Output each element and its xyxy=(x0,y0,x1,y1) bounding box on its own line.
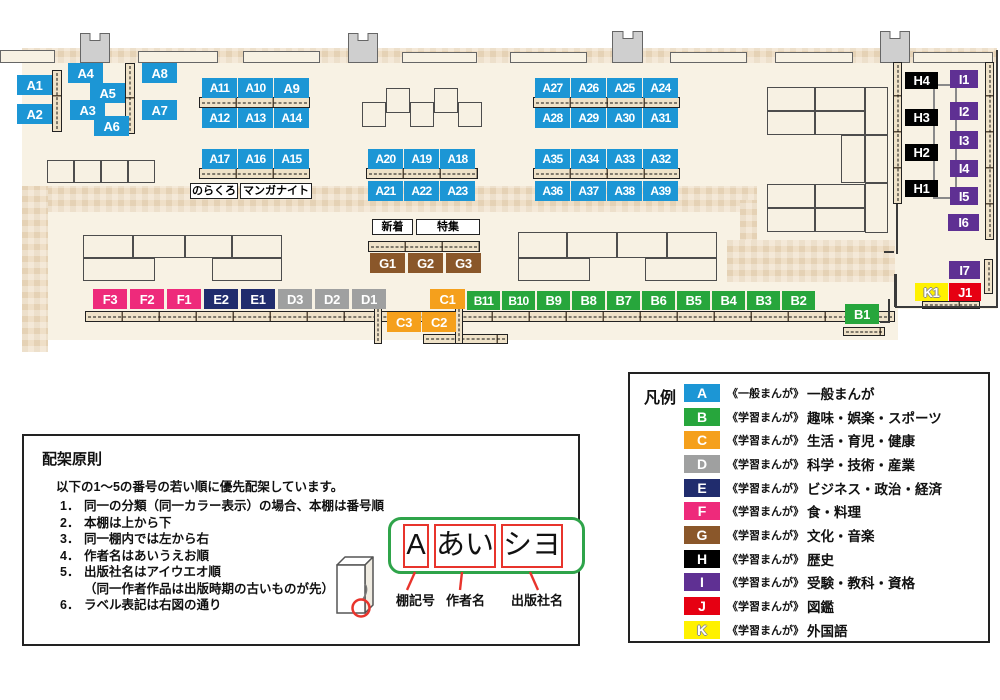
shelf-label-a34: A34 xyxy=(571,149,606,169)
shelf-label-a29: A29 xyxy=(571,108,606,128)
wall-4 xyxy=(880,321,890,323)
shelf-label-a32: A32 xyxy=(643,149,678,169)
shelf-label-j1: J1 xyxy=(949,283,981,301)
shelf-label-g3: G3 xyxy=(446,253,481,273)
legend-box: 凡例 A《一般まんが》一般まんがB《学習まんが》趣味・娯楽・スポーツC《学習まん… xyxy=(628,372,990,643)
legend-row-D: D《学習まんが》科学・技術・産業 xyxy=(684,452,942,476)
principle-number xyxy=(60,581,84,598)
table-12 xyxy=(232,235,282,258)
principle-number: 2． xyxy=(60,515,84,532)
legend-chip-H: H xyxy=(684,550,720,568)
table-9 xyxy=(83,235,133,258)
table-21 xyxy=(767,87,815,111)
legend-chip-C: C xyxy=(684,431,720,449)
legend-rows: A《一般まんが》一般まんがB《学習まんが》趣味・娯楽・スポーツC《学習まんが》生… xyxy=(684,381,942,642)
bookshelf-h-6 xyxy=(85,311,895,322)
bookshelf-v-0 xyxy=(52,70,62,132)
wall-counter-3 xyxy=(402,52,477,63)
table-3 xyxy=(128,160,155,183)
wall-2 xyxy=(894,274,897,307)
shelf-label-b2: B2 xyxy=(782,291,815,310)
bookshelf-v-3 xyxy=(985,62,994,240)
caption-shelf-code: 棚記号 xyxy=(396,590,435,609)
shelf-label-a6: A6 xyxy=(94,116,129,136)
shelf-label-i2: I2 xyxy=(950,102,978,120)
principle-item-2: 2．本棚は上から下 xyxy=(60,515,384,532)
legend-category: ビジネス・政治・経済 xyxy=(807,478,942,498)
legend-row-J: J《学習まんが》図鑑 xyxy=(684,594,942,618)
spine-label: A あい シヨ xyxy=(388,517,585,574)
shelf-label-e2: E2 xyxy=(204,289,238,309)
shelf-label-b1: B1 xyxy=(845,304,879,324)
table-27 xyxy=(865,183,888,233)
table-5 xyxy=(386,88,410,113)
legend-chip-I: I xyxy=(684,573,720,591)
table-0 xyxy=(47,160,74,183)
wall-0 xyxy=(996,50,998,308)
table-31 xyxy=(767,208,815,232)
principle-text: 本棚は上から下 xyxy=(84,515,172,532)
shelf-label-a19: A19 xyxy=(404,149,439,169)
principle-number: 5． xyxy=(60,564,84,581)
table-2 xyxy=(101,160,128,183)
table-10 xyxy=(133,235,185,258)
bookshelf-h-5 xyxy=(368,241,480,252)
shelf-label-a23: A23 xyxy=(440,181,475,201)
shelf-label-g2: G2 xyxy=(408,253,443,273)
shelf-label-a27: A27 xyxy=(535,78,570,98)
legend-chip-F: F xyxy=(684,502,720,520)
shelf-label-b9: B9 xyxy=(537,291,570,310)
shelf-label-c1: C1 xyxy=(430,289,465,309)
shelf-label-h2: H2 xyxy=(905,144,938,161)
shelf-label-c3: C3 xyxy=(387,312,421,332)
bookshelf-h-9 xyxy=(843,327,885,336)
legend-row-H: H《学習まんが》歴史 xyxy=(684,547,942,571)
callout-lines xyxy=(390,570,590,592)
shelf-label-a30: A30 xyxy=(607,108,642,128)
bookshelf-v-5 xyxy=(455,306,463,344)
walkway-3 xyxy=(740,200,757,245)
shelf-label-a20: A20 xyxy=(368,149,403,169)
outside-area xyxy=(898,309,1000,344)
shelf-label-g1: G1 xyxy=(370,253,405,273)
legend-prefix: 《学習まんが》 xyxy=(727,527,804,543)
walkway-2 xyxy=(22,186,48,352)
principle-number: 6． xyxy=(60,597,84,614)
legend-row-G: G《学習まんが》文化・音楽 xyxy=(684,523,942,547)
shelf-label-a7: A7 xyxy=(142,100,177,120)
shelf-label-h4: H4 xyxy=(905,72,938,89)
table-6 xyxy=(410,102,434,127)
shelf-label-b5: B5 xyxy=(677,291,710,310)
shelf-label-b10: B10 xyxy=(502,291,535,310)
annotation-new-arrivals: 新着 xyxy=(372,219,413,235)
pillar-2 xyxy=(612,31,643,63)
table-24 xyxy=(815,111,865,135)
principle-item-1: 1．同一の分類（同一カラー表示）の場合、本棚は番号順 xyxy=(60,498,384,515)
shelf-label-a2: A2 xyxy=(17,104,52,124)
shelf-label-b6: B6 xyxy=(642,291,675,310)
shelf-label-a12: A12 xyxy=(202,108,237,128)
legend-category: 食・料理 xyxy=(807,501,861,521)
table-1 xyxy=(74,160,101,183)
legend-chip-D: D xyxy=(684,455,720,473)
shelf-label-f2: F2 xyxy=(130,289,164,309)
pillar-0 xyxy=(80,33,110,63)
table-25 xyxy=(865,87,888,135)
spine-shelf-code-box: A xyxy=(403,524,429,568)
wall-1 xyxy=(895,306,998,308)
legend-prefix: 《一般まんが》 xyxy=(727,385,804,401)
wall-3 xyxy=(888,299,890,323)
shelf-label-a38: A38 xyxy=(607,181,642,201)
shelf-label-a17: A17 xyxy=(202,149,237,169)
shelf-label-i1: I1 xyxy=(950,70,978,88)
shelf-label-b7: B7 xyxy=(607,291,640,310)
legend-prefix: 《学習まんが》 xyxy=(727,432,804,448)
table-30 xyxy=(815,184,865,208)
shelf-label-a25: A25 xyxy=(607,78,642,98)
wall-counter-6 xyxy=(775,52,853,63)
principle-text: 同一の分類（同一カラー表示）の場合、本棚は番号順 xyxy=(84,498,384,515)
shelf-label-a4: A4 xyxy=(68,63,103,83)
annotation-manga-night: マンガナイト xyxy=(240,183,312,199)
bookshelf-v-2 xyxy=(893,62,902,204)
shelf-label-a8: A8 xyxy=(142,63,177,83)
legend-chip-A: A xyxy=(684,384,720,402)
wall-counter-0 xyxy=(0,50,55,63)
principle-number: 1． xyxy=(60,498,84,515)
legend-row-B: B《学習まんが》趣味・娯楽・スポーツ xyxy=(684,405,942,429)
principles-intro: 以下の1～5の番号の若い順に優先配架しています。 xyxy=(56,476,343,495)
legend-category: 文化・音楽 xyxy=(807,525,875,545)
shelf-label-d3: D3 xyxy=(278,289,312,309)
table-23 xyxy=(767,111,815,135)
legend-category: 生活・育児・健康 xyxy=(807,430,915,450)
shelf-label-a16: A16 xyxy=(238,149,273,169)
principle-number: 4． xyxy=(60,548,84,565)
table-28 xyxy=(841,135,865,183)
legend-category: 外国語 xyxy=(807,620,848,640)
table-8 xyxy=(458,102,482,127)
bookshelf-h-1 xyxy=(199,168,310,179)
shelf-label-a1: A1 xyxy=(17,75,52,95)
table-11 xyxy=(185,235,232,258)
book-icon xyxy=(330,550,384,620)
principle-text: 出版社名はアイウエオ順 xyxy=(84,564,221,581)
walkway-4 xyxy=(727,240,895,282)
shelf-label-a24: A24 xyxy=(643,78,678,98)
table-29 xyxy=(767,184,815,208)
bookshelf-v-4 xyxy=(374,306,382,344)
shelf-label-a9: A9 xyxy=(274,78,309,98)
floor-map-page: A1A2A4A5A3A6A8A7A11A10A9A12A13A14A17A16A… xyxy=(0,0,1000,700)
table-17 xyxy=(617,232,667,258)
bookshelf-h-3 xyxy=(533,97,680,108)
legend-chip-J: J xyxy=(684,597,720,615)
shelf-label-a26: A26 xyxy=(571,78,606,98)
spine-publisher-box: シヨ xyxy=(501,524,563,568)
shelf-label-b4: B4 xyxy=(712,291,745,310)
wall-counter-1 xyxy=(138,51,218,63)
wall-counter-4 xyxy=(510,52,587,63)
wall-counter-7 xyxy=(913,52,993,63)
table-18 xyxy=(667,232,717,258)
shelf-label-a13: A13 xyxy=(238,108,273,128)
wall-5 xyxy=(896,204,898,254)
shelf-label-b8: B8 xyxy=(572,291,605,310)
legend-row-A: A《一般まんが》一般まんが xyxy=(684,381,942,405)
legend-chip-E: E xyxy=(684,479,720,497)
shelf-label-a21: A21 xyxy=(368,181,403,201)
legend-row-K: K《学習まんが》外国語 xyxy=(684,618,942,642)
caption-publisher: 出版社名 xyxy=(511,590,563,609)
legend-title: 凡例 xyxy=(644,384,676,408)
legend-category: 受験・教科・資格 xyxy=(807,572,915,592)
legend-chip-B: B xyxy=(684,408,720,426)
table-4 xyxy=(362,102,386,127)
annotation-norakuro: のらくろ xyxy=(190,183,238,199)
principle-item-3: 3．同一棚内では左から右 xyxy=(60,531,384,548)
shelf-label-h1: H1 xyxy=(905,180,938,197)
principle-text: （同一作者作品は出版時期の古いものが先） xyxy=(84,581,334,598)
table-26 xyxy=(865,135,888,183)
table-16 xyxy=(567,232,617,258)
legend-category: 図鑑 xyxy=(807,596,834,616)
legend-row-C: C《学習まんが》生活・育児・健康 xyxy=(684,428,942,452)
shelf-label-a15: A15 xyxy=(274,149,309,169)
legend-prefix: 《学習まんが》 xyxy=(727,503,804,519)
table-19 xyxy=(518,258,590,281)
table-13 xyxy=(83,258,155,281)
legend-row-E: E《学習まんが》ビジネス・政治・経済 xyxy=(684,476,942,500)
spine-author-box: あい xyxy=(434,524,496,568)
legend-prefix: 《学習まんが》 xyxy=(727,622,804,638)
shelf-label-a31: A31 xyxy=(643,108,678,128)
shelf-label-b3: B3 xyxy=(747,291,780,310)
shelf-label-d2: D2 xyxy=(315,289,349,309)
legend-prefix: 《学習まんが》 xyxy=(727,598,804,614)
legend-chip-K: K xyxy=(684,621,720,639)
shelf-label-f1: F1 xyxy=(167,289,201,309)
caption-author: 作者名 xyxy=(446,590,485,609)
shelf-label-a33: A33 xyxy=(607,149,642,169)
shelf-label-c2: C2 xyxy=(422,312,456,332)
shelf-label-a10: A10 xyxy=(238,78,273,98)
shelf-label-i5: I5 xyxy=(950,187,978,205)
shelf-label-i3: I3 xyxy=(950,131,978,149)
shelf-label-h3: H3 xyxy=(905,109,938,126)
shelf-label-a39: A39 xyxy=(643,181,678,201)
shelf-label-k1: K1 xyxy=(915,283,948,301)
shelf-label-a37: A37 xyxy=(571,181,606,201)
pillar-3 xyxy=(880,31,910,63)
principles-title: 配架原則 xyxy=(42,448,102,469)
legend-category: 科学・技術・産業 xyxy=(807,454,915,474)
wall-counter-2 xyxy=(243,51,320,63)
table-15 xyxy=(518,232,567,258)
bookshelf-h-2 xyxy=(366,168,478,179)
bookshelf-h-0 xyxy=(199,97,310,108)
bookshelf-h-7 xyxy=(423,334,508,344)
shelf-label-a36: A36 xyxy=(535,181,570,201)
shelf-label-i4: I4 xyxy=(950,160,978,177)
principle-number: 3． xyxy=(60,531,84,548)
table-20 xyxy=(645,258,717,281)
legend-category: 趣味・娯楽・スポーツ xyxy=(807,407,942,427)
principle-text: 作者名はあいうえお順 xyxy=(84,548,209,565)
shelf-label-a28: A28 xyxy=(535,108,570,128)
legend-category: 歴史 xyxy=(807,549,834,569)
table-32 xyxy=(815,208,865,232)
wall-6 xyxy=(884,251,894,253)
pillar-1 xyxy=(348,33,378,63)
legend-prefix: 《学習まんが》 xyxy=(727,409,804,425)
table-7 xyxy=(434,88,458,113)
legend-prefix: 《学習まんが》 xyxy=(727,480,804,496)
shelf-label-i7: I7 xyxy=(949,261,980,279)
legend-category: 一般まんが xyxy=(807,383,875,403)
shelf-label-i6: I6 xyxy=(948,214,979,231)
shelf-label-a18: A18 xyxy=(440,149,475,169)
table-14 xyxy=(212,258,282,281)
shelf-label-a11: A11 xyxy=(202,78,237,98)
legend-prefix: 《学習まんが》 xyxy=(727,574,804,590)
legend-chip-G: G xyxy=(684,526,720,544)
shelf-label-e1: E1 xyxy=(241,289,275,309)
shelf-label-a22: A22 xyxy=(404,181,439,201)
bookshelf-h-4 xyxy=(533,168,680,179)
shelf-label-a14: A14 xyxy=(274,108,309,128)
table-22 xyxy=(815,87,865,111)
shelf-label-b11: B11 xyxy=(467,291,500,310)
legend-prefix: 《学習まんが》 xyxy=(727,551,804,567)
legend-row-I: I《学習まんが》受験・教科・資格 xyxy=(684,571,942,595)
shelf-label-a35: A35 xyxy=(535,149,570,169)
principle-text: ラベル表記は右図の通り xyxy=(84,597,222,614)
wall-counter-5 xyxy=(670,52,747,63)
annotation-special-feature: 特集 xyxy=(416,219,480,235)
legend-prefix: 《学習まんが》 xyxy=(727,456,804,472)
shelf-label-d1: D1 xyxy=(352,289,386,309)
bookshelf-v-6 xyxy=(984,259,993,294)
principle-text: 同一棚内では左から右 xyxy=(84,531,209,548)
shelf-label-f3: F3 xyxy=(93,289,127,309)
legend-row-F: F《学習まんが》食・料理 xyxy=(684,499,942,523)
